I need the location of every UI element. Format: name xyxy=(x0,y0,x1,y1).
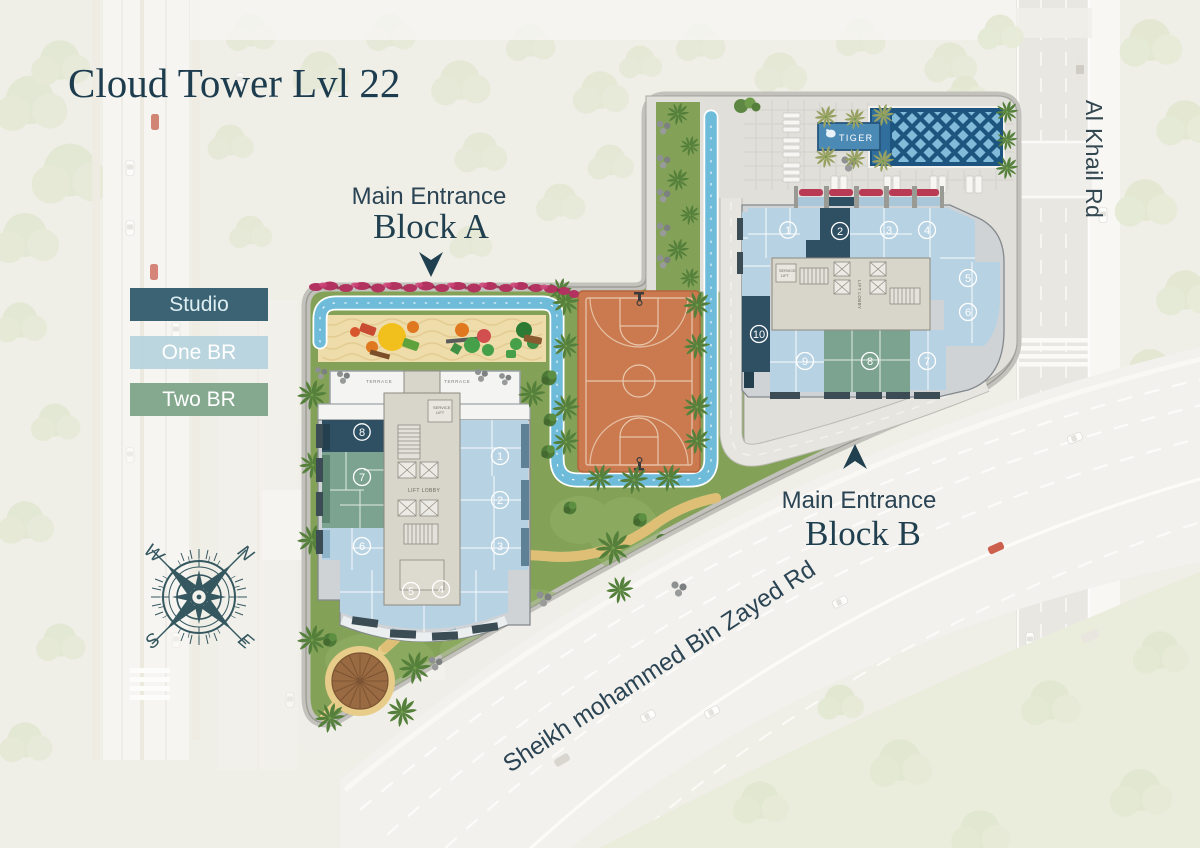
svg-text:8: 8 xyxy=(359,427,365,439)
svg-text:8: 8 xyxy=(867,356,873,368)
svg-text:1: 1 xyxy=(785,225,791,237)
svg-text:7: 7 xyxy=(924,356,930,368)
svg-text:5: 5 xyxy=(965,273,971,285)
svg-text:Block B: Block B xyxy=(805,514,921,553)
svg-text:7: 7 xyxy=(359,472,365,484)
svg-text:LIFT: LIFT xyxy=(781,274,789,278)
svg-text:TERRACE: TERRACE xyxy=(366,379,392,384)
svg-text:Main Entrance: Main Entrance xyxy=(782,487,937,514)
svg-text:One BR: One BR xyxy=(162,341,237,364)
svg-text:Cloud Tower Lvl 22: Cloud Tower Lvl 22 xyxy=(68,60,400,106)
svg-text:4: 4 xyxy=(438,584,444,596)
svg-text:LIFT: LIFT xyxy=(436,410,445,415)
svg-text:Studio: Studio xyxy=(169,293,229,316)
svg-text:Main Entrance: Main Entrance xyxy=(352,183,507,210)
svg-text:LIFT LOBBY: LIFT LOBBY xyxy=(857,280,862,309)
svg-text:5: 5 xyxy=(408,586,414,598)
svg-text:Al Khail Rd: Al Khail Rd xyxy=(1081,100,1107,218)
svg-text:SERVICE: SERVICE xyxy=(779,269,796,273)
svg-text:TIGER: TIGER xyxy=(839,133,874,143)
svg-text:2: 2 xyxy=(497,495,503,507)
svg-text:1: 1 xyxy=(497,451,503,463)
svg-text:3: 3 xyxy=(886,225,892,237)
svg-text:9: 9 xyxy=(802,356,808,368)
svg-text:6: 6 xyxy=(359,541,365,553)
svg-text:6: 6 xyxy=(965,307,971,319)
svg-text:10: 10 xyxy=(753,329,765,341)
svg-text:2: 2 xyxy=(837,226,843,238)
svg-text:4: 4 xyxy=(924,225,930,237)
svg-text:LIFT LOBBY: LIFT LOBBY xyxy=(408,488,441,494)
svg-text:3: 3 xyxy=(497,541,503,553)
svg-text:TERRACE: TERRACE xyxy=(444,379,470,384)
svg-text:Two BR: Two BR xyxy=(162,388,236,411)
svg-text:Block A: Block A xyxy=(373,207,489,246)
